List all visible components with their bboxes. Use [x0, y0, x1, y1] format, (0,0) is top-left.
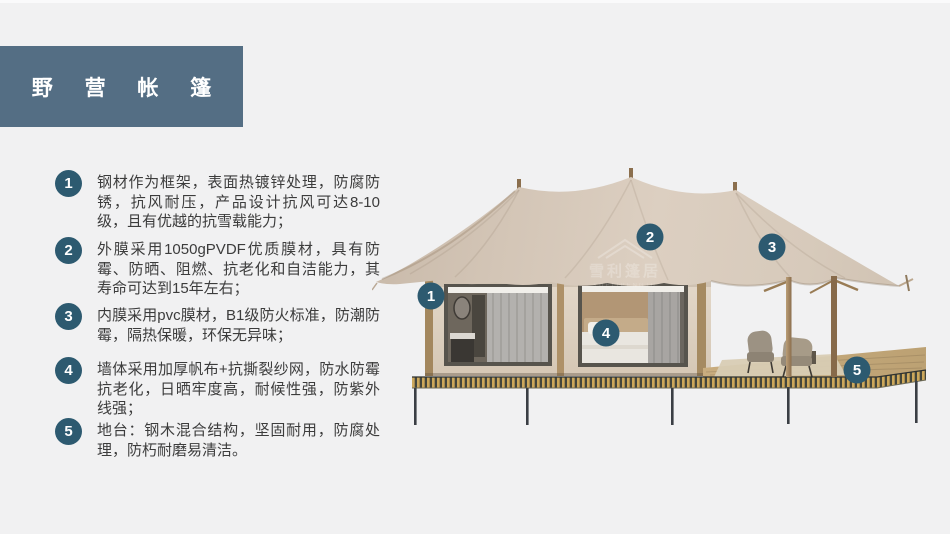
feature-text-5: 地台：钢木混合结构，坚固耐用，防腐处理，防朽耐磨易清洁。: [97, 421, 380, 460]
deck-leg: [915, 381, 918, 423]
deck-leg: [414, 388, 417, 425]
svg-text:1: 1: [427, 288, 435, 305]
feature-text-2: 外膜采用1050gPVDF优质膜材，具有防霉、防晒、阻燃、抗老化和自洁能力，其寿…: [97, 240, 380, 299]
rug: [714, 354, 846, 377]
top-edge-strip: [0, 0, 950, 3]
sink: [450, 333, 475, 339]
svg-text:YUELIPENGJU: YUELIPENGJU: [593, 283, 657, 289]
mid-post: [557, 281, 564, 376]
corner-post-right: [697, 279, 706, 376]
porch-post: [786, 277, 792, 377]
slide: 野 营 帐 篷 1 钢材作为框架，表面热镀锌处理，防腐防锈，抗风耐压，产品设计抗…: [0, 0, 950, 534]
svg-text:4: 4: [602, 325, 611, 342]
svg-text:2: 2: [646, 229, 654, 246]
deck-leg: [671, 388, 674, 425]
title-banner: 野 营 帐 篷: [0, 46, 243, 127]
feature-badge-4: 4: [55, 357, 82, 384]
deck-leg: [787, 387, 790, 424]
callout-badge-2: 2: [637, 224, 664, 251]
deck-leg: [526, 388, 529, 425]
feature-badge-5: 5: [55, 418, 82, 445]
svg-text:3: 3: [768, 239, 776, 256]
window-right: [578, 283, 688, 367]
callout-badge-4: 4: [593, 320, 620, 347]
tent-illustration: 雪利篷居 YUELIPENGJU 1 2 3 4 5: [372, 150, 950, 440]
feature-item-5: 5 地台：钢木混合结构，坚固耐用，防腐处理，防朽耐磨易清洁。: [55, 421, 387, 460]
feature-item-4: 4 墙体采用加厚帆布+抗撕裂纱网，防水防霉抗老化，日晒牢度高，耐候性强，防紫外线…: [55, 360, 387, 419]
porch-post: [831, 276, 837, 377]
feature-item-2: 2 外膜采用1050gPVDF优质膜材，具有防霉、防晒、阻燃、抗老化和自洁能力，…: [55, 240, 387, 299]
valance: [448, 287, 548, 293]
svg-text:雪利篷居: 雪利篷居: [589, 262, 661, 280]
cabin: [425, 279, 711, 376]
feature-item-3: 3 内膜采用pvc膜材，B1级防火标准，防潮防霉，隔热保暖，环保无异味；: [55, 306, 387, 345]
feature-text-4: 墙体采用加厚帆布+抗撕裂纱网，防水防霉抗老化，日晒牢度高，耐候性强，防紫外线强；: [97, 360, 380, 419]
feature-badge-2: 2: [55, 237, 82, 264]
callout-badge-5: 5: [844, 357, 871, 384]
window-left: [444, 284, 552, 366]
peak-pole-center: [629, 168, 633, 178]
page-title: 野 营 帐 篷: [32, 72, 225, 102]
callout-badge-1: 1: [418, 283, 445, 310]
feature-badge-1: 1: [55, 170, 82, 197]
svg-text:5: 5: [853, 362, 861, 379]
callout-badge-3: 3: [759, 234, 786, 261]
feature-text-1: 钢材作为框架，表面热镀锌处理，防腐防锈，抗风耐压，产品设计抗风可达8-10级，且…: [97, 173, 380, 232]
feature-item-1: 1 钢材作为框架，表面热镀锌处理，防腐防锈，抗风耐压，产品设计抗风可达8-10级…: [55, 173, 387, 232]
feature-badge-3: 3: [55, 303, 82, 330]
mirror: [454, 297, 470, 319]
porch: [703, 330, 926, 379]
feature-text-3: 内膜采用pvc膜材，B1级防火标准，防潮防霉，隔热保暖，环保无异味；: [97, 306, 380, 345]
